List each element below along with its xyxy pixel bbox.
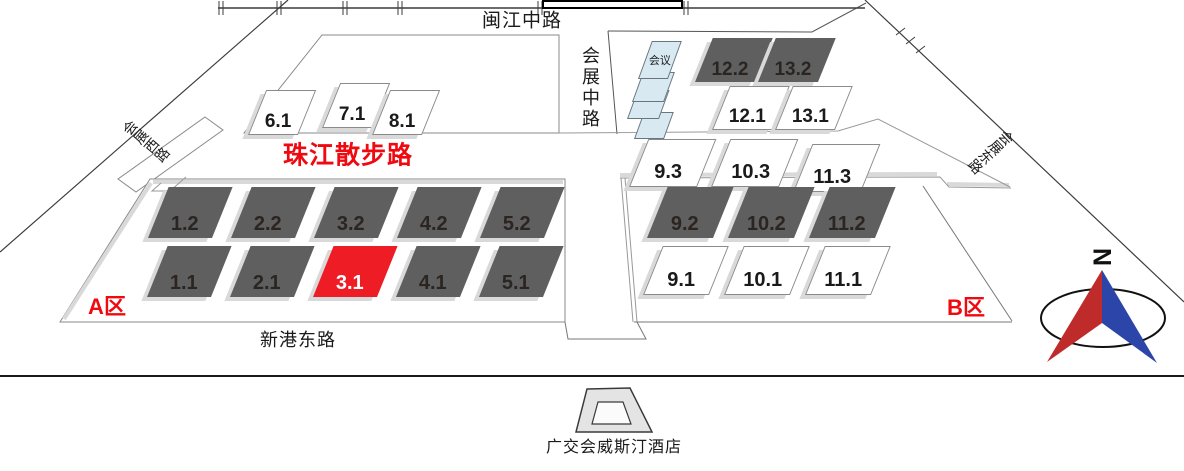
hotel-icon — [576, 388, 652, 432]
road-hatch-ticks — [896, 28, 925, 53]
road-label-huizhan-middle: 会展中路 — [581, 46, 599, 130]
zone-b-label: B区 — [947, 297, 985, 319]
zone-a-label: A区 — [88, 296, 126, 318]
canton-fair-map: 会议 6.1 7.1 8.1 1.2 2.2 3.2 4.2 5.2 1.1 2… — [0, 0, 1184, 471]
hotel-label: 广交会威斯汀酒店 — [546, 440, 682, 456]
top-building-footprint — [543, 1, 682, 8]
road-label-xingang-east: 新港东路 — [260, 331, 336, 349]
compass-icon — [1041, 270, 1165, 363]
compass-blue-half — [1102, 270, 1157, 363]
compass-red-half — [1047, 270, 1102, 362]
road-label-zhujiang-promenade: 珠江散步路 — [283, 144, 413, 169]
compass-north-letter: N — [1089, 248, 1114, 266]
conference-label: 会议 — [649, 52, 671, 68]
road-label-minjiang-middle: 闽江中路 — [482, 12, 562, 31]
